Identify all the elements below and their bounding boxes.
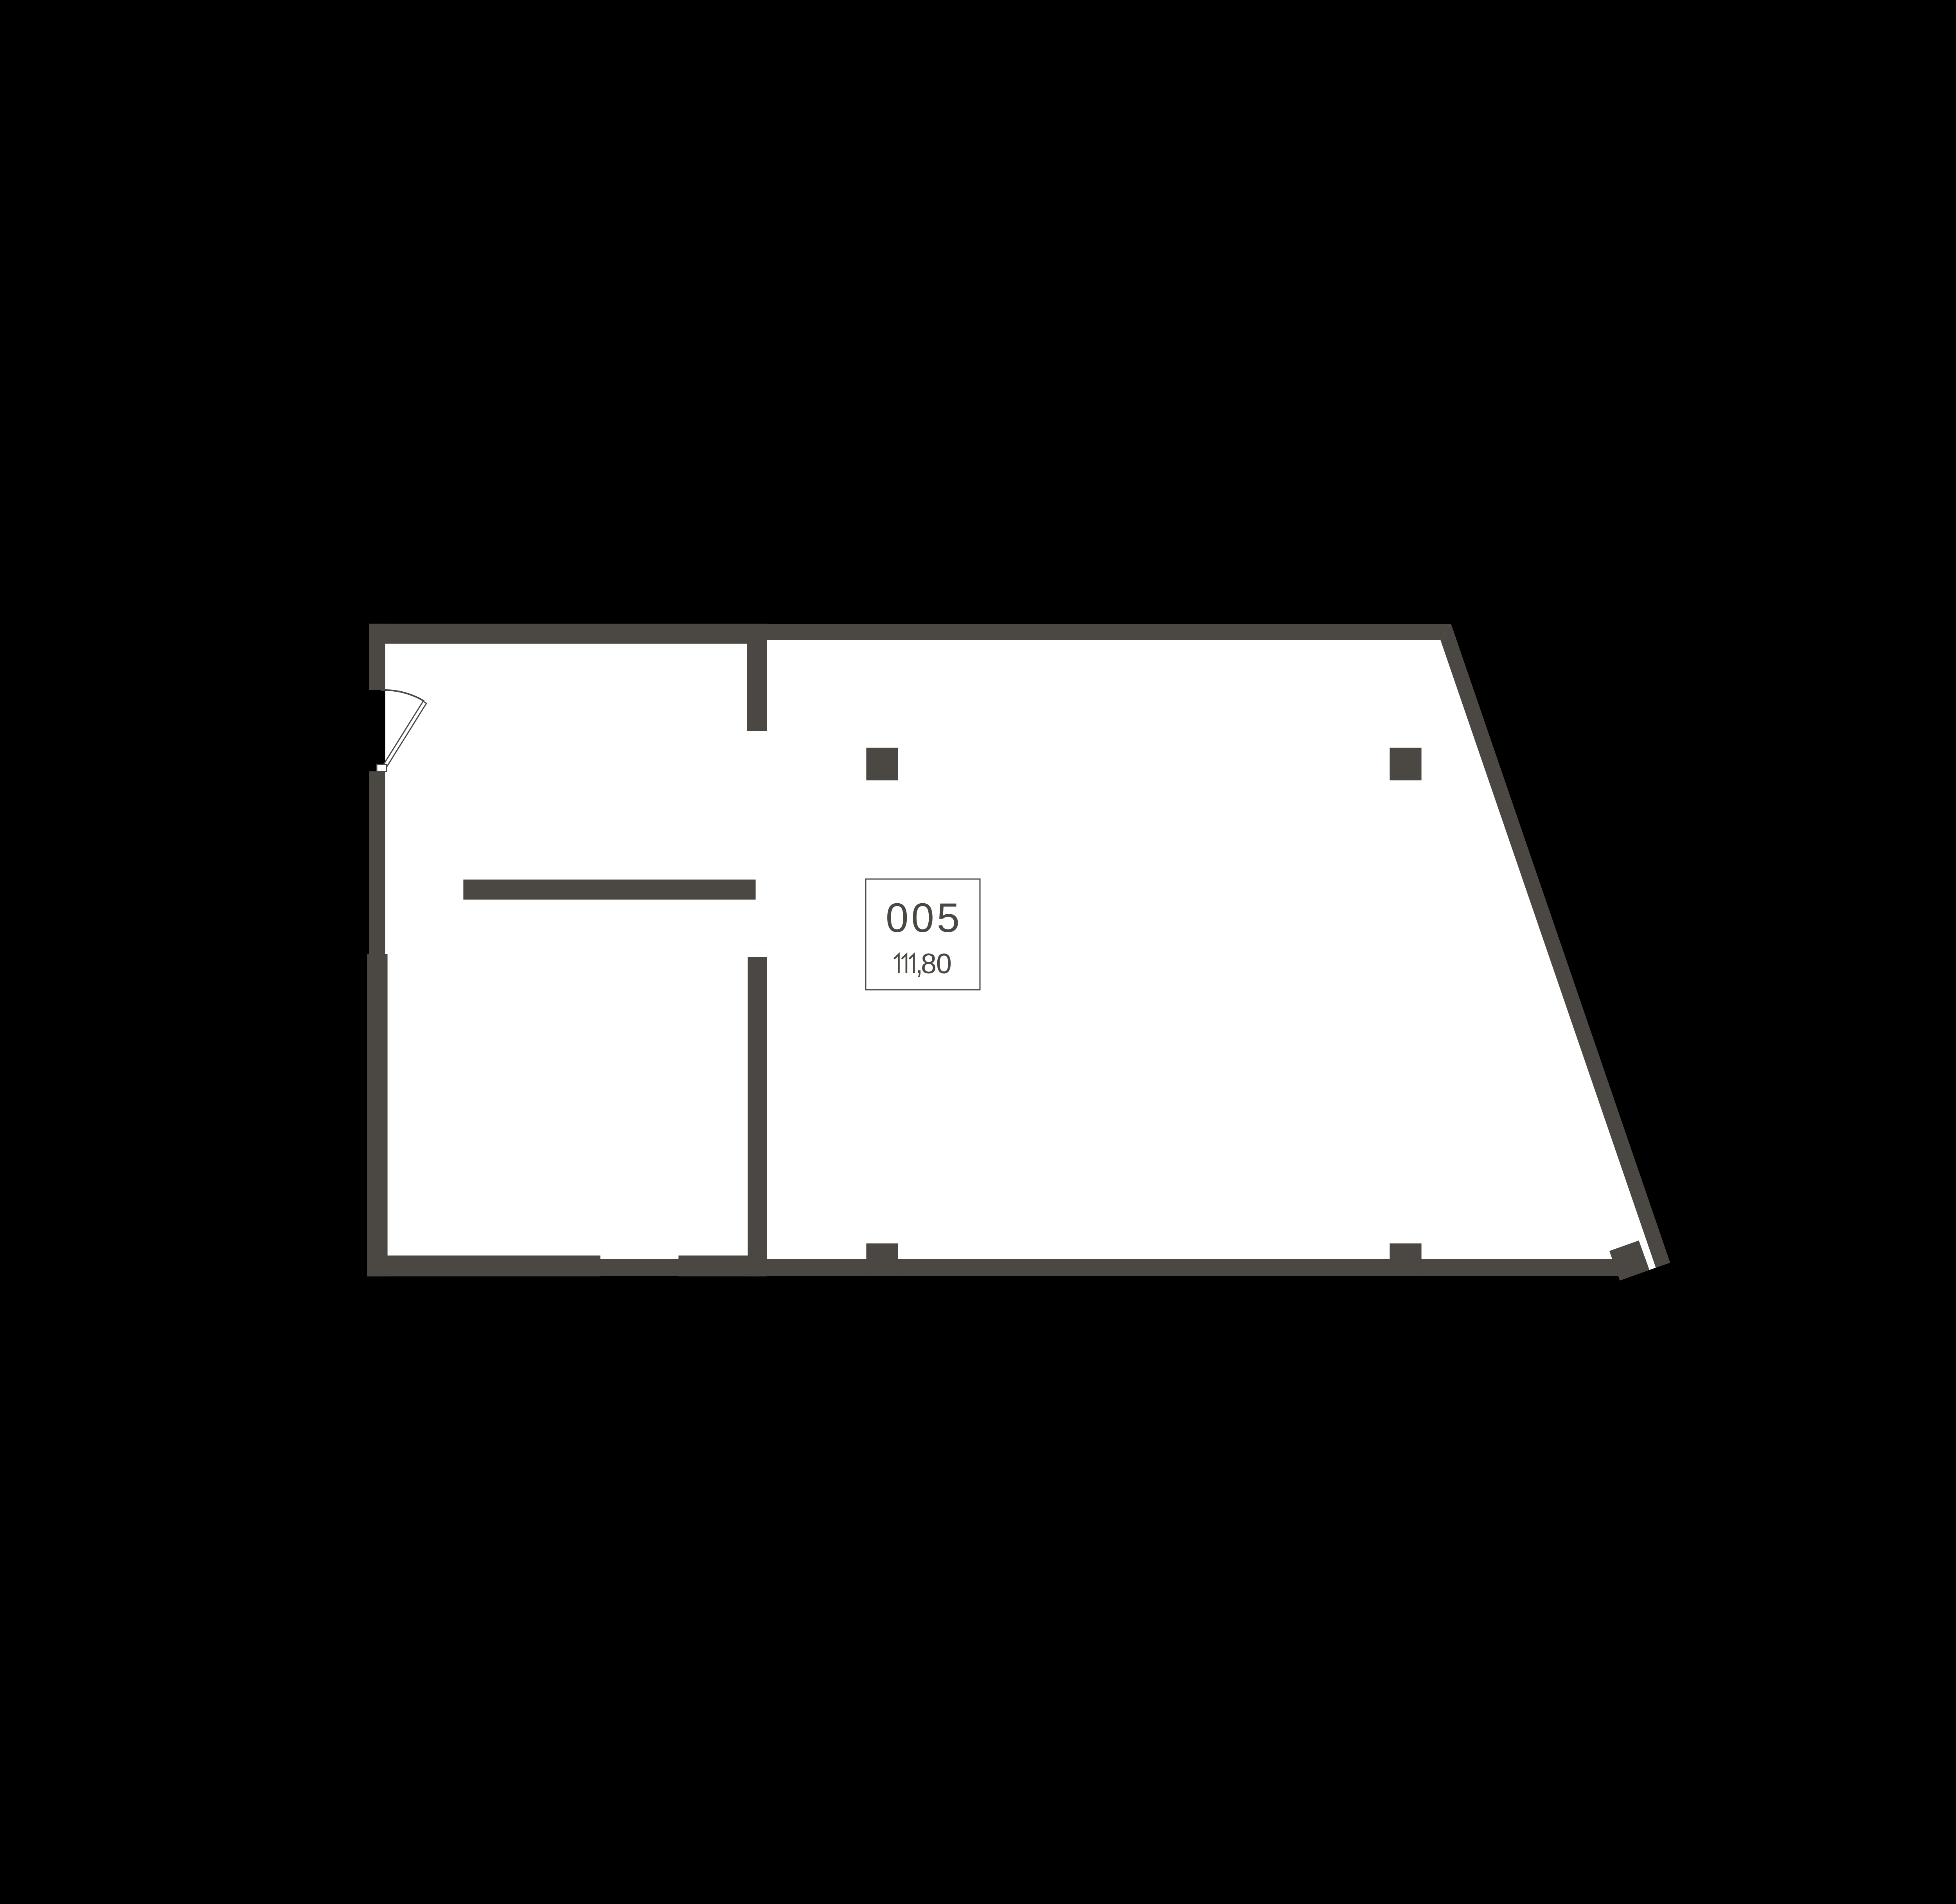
svg-text:005: 005 xyxy=(886,895,962,941)
svg-text:0: 0 xyxy=(936,948,952,980)
svg-text:8: 8 xyxy=(921,948,937,980)
